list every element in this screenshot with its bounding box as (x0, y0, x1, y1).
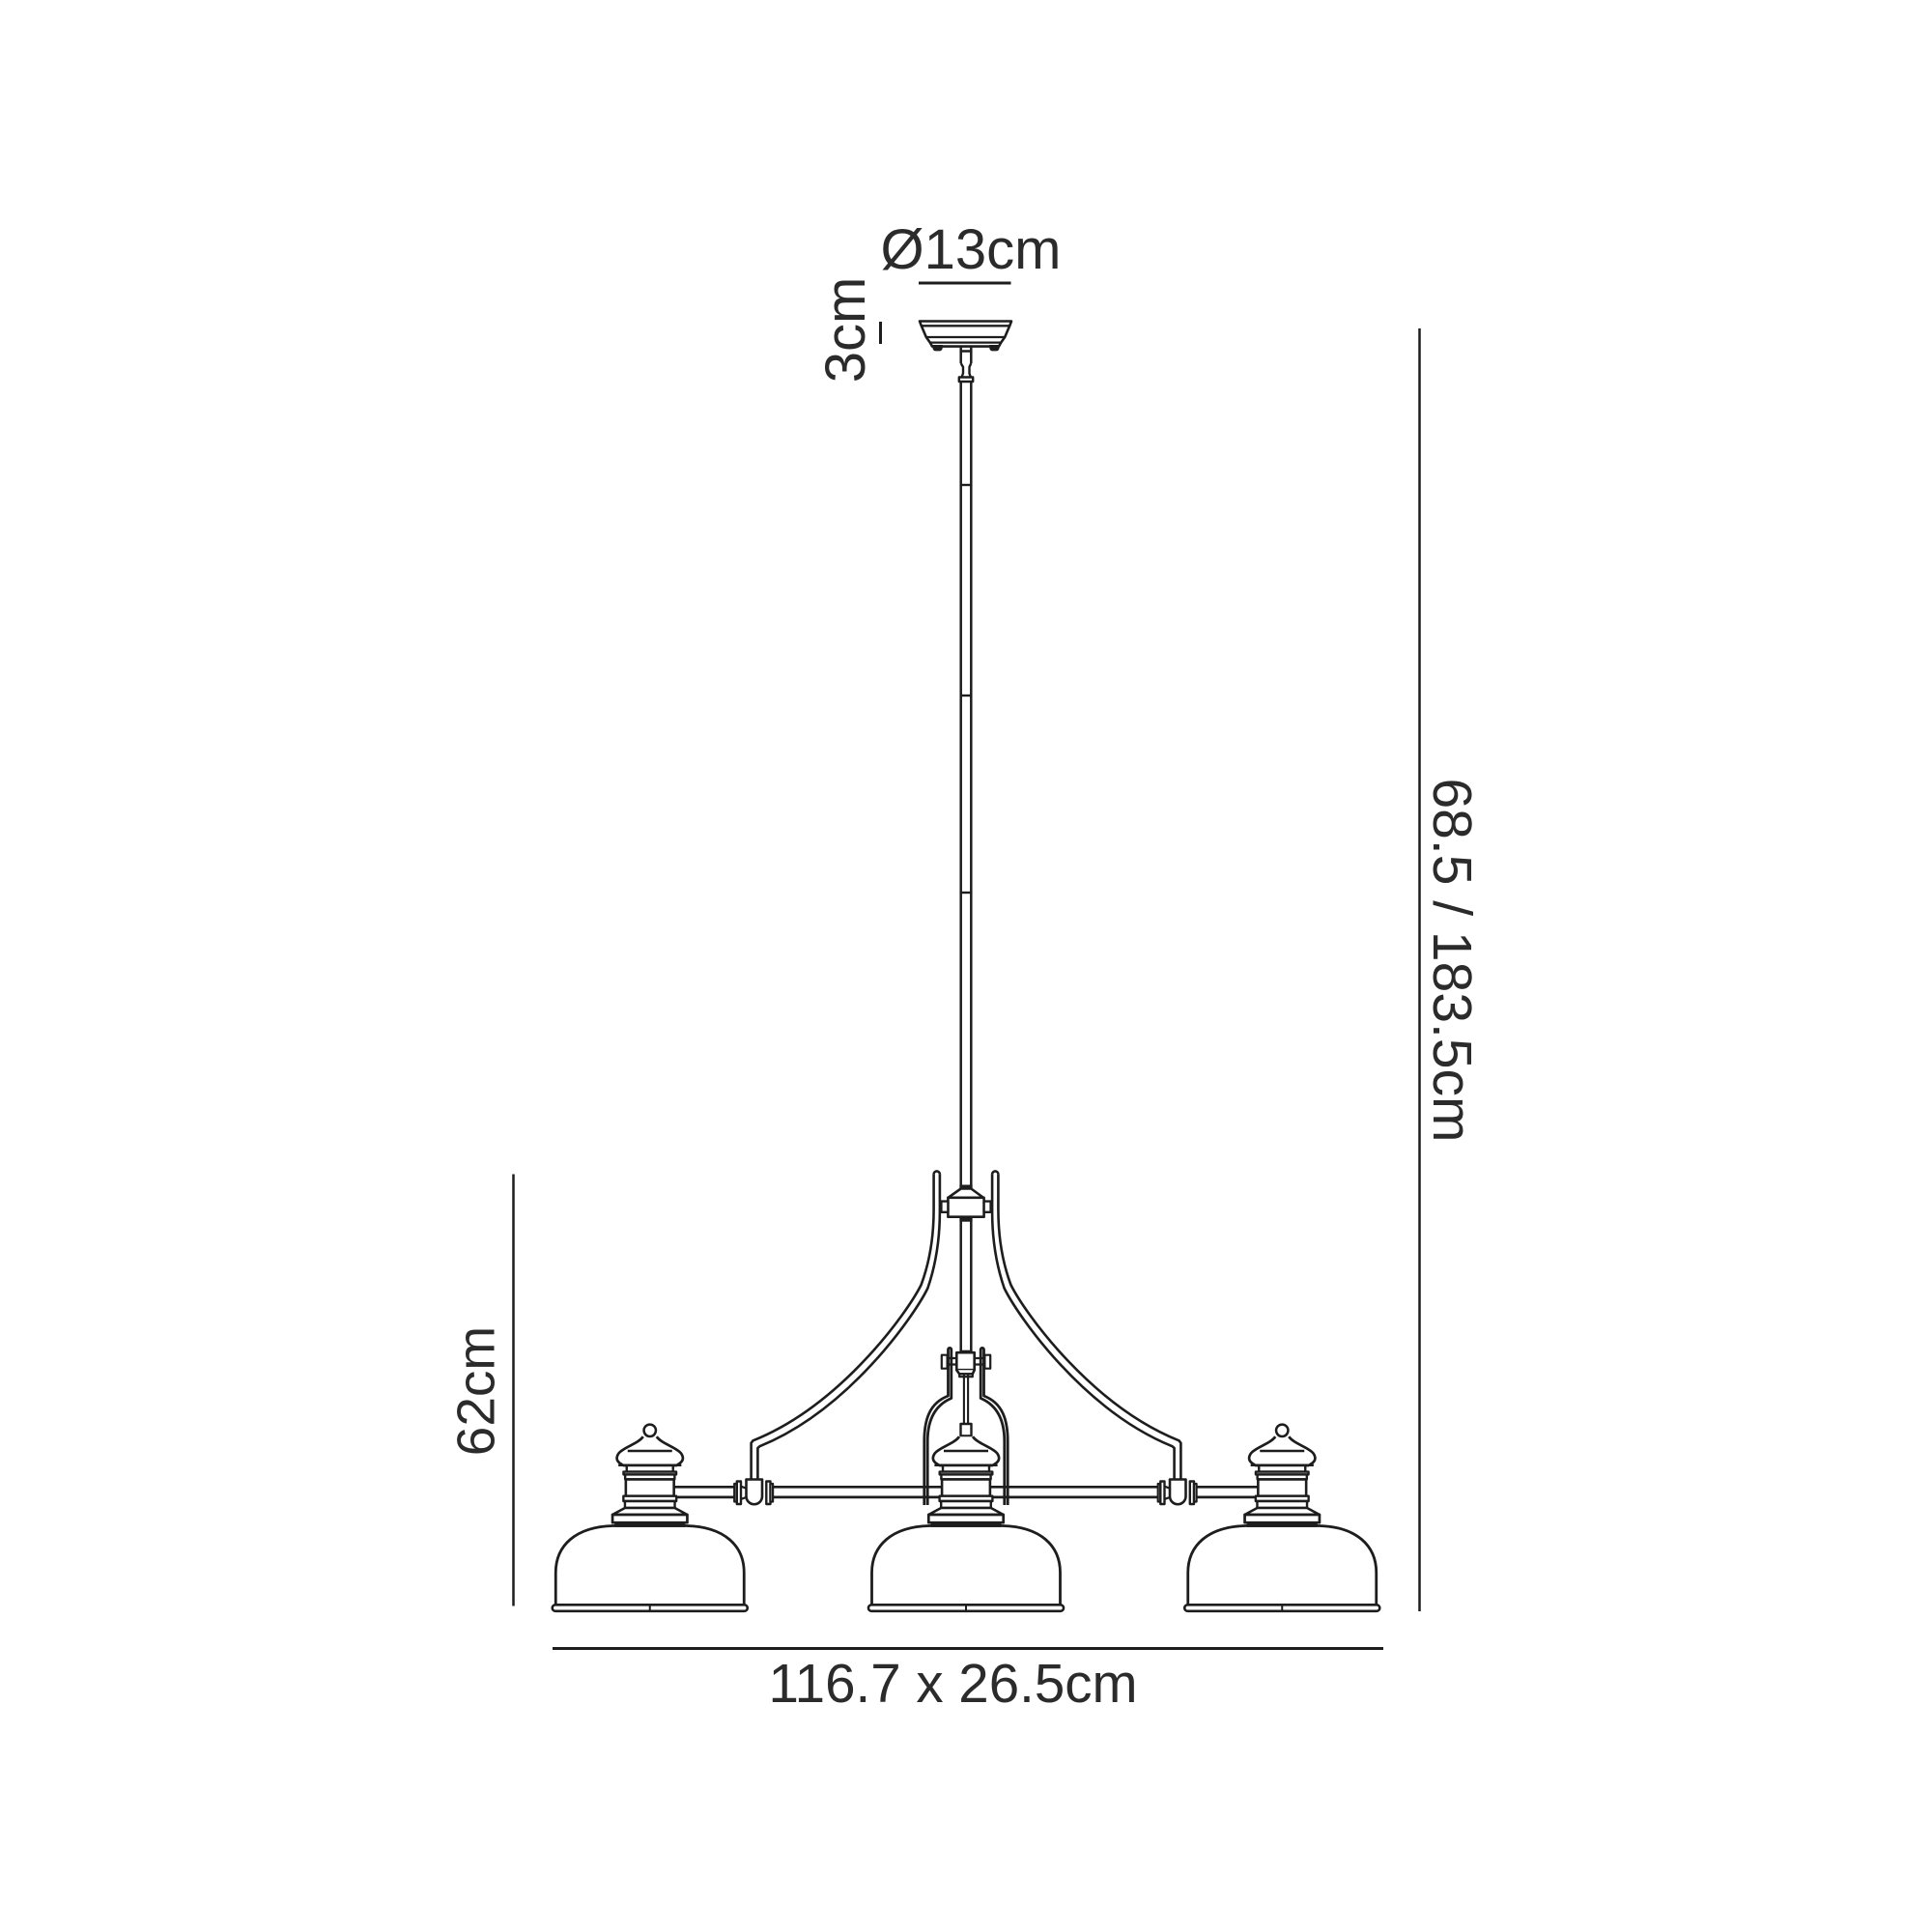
svg-text:3cm: 3cm (814, 277, 877, 384)
svg-text:68.5 / 183.5cm: 68.5 / 183.5cm (1421, 778, 1483, 1142)
svg-text:116.7 x 26.5cm: 116.7 x 26.5cm (768, 1653, 1137, 1714)
svg-text:62cm: 62cm (446, 1326, 506, 1457)
svg-text:Ø13cm: Ø13cm (881, 218, 1062, 281)
